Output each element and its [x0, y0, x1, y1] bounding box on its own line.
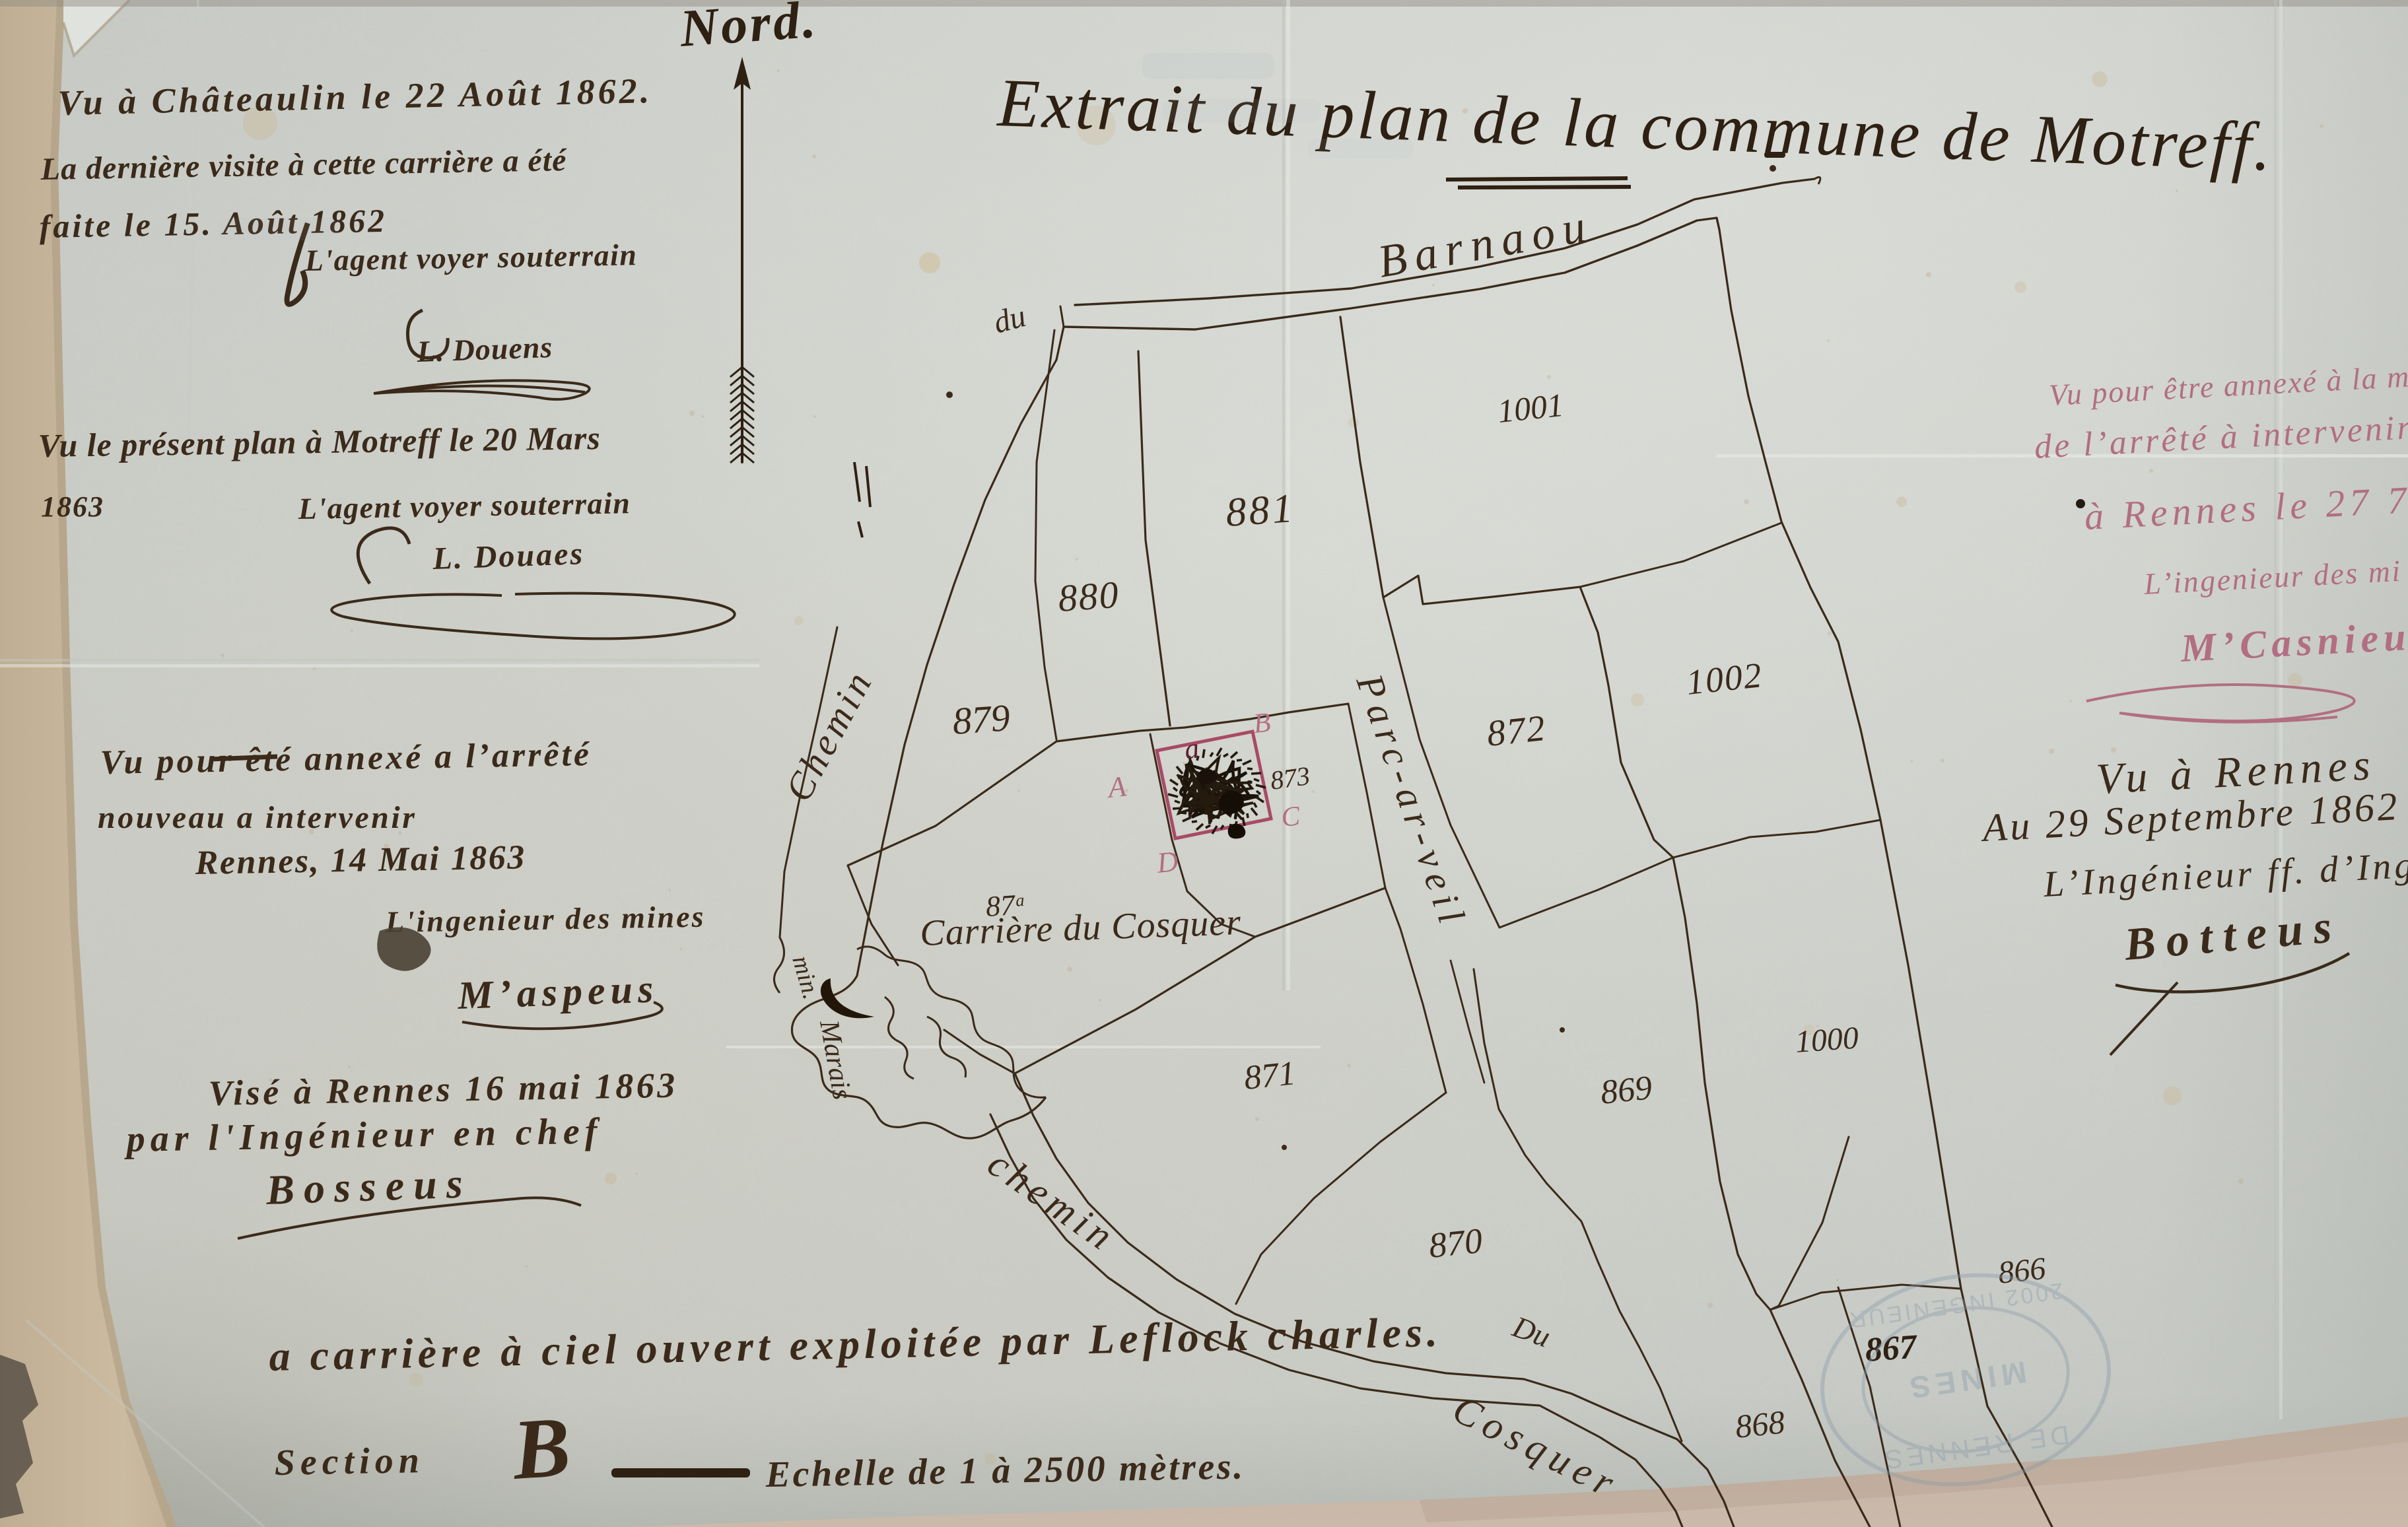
svg-text:D: D [1155, 845, 1180, 879]
svg-text:L. Douaes: L. Douaes [432, 536, 585, 576]
svg-text:C: C [1280, 801, 1302, 833]
svg-text:869: 869 [1599, 1069, 1654, 1112]
svg-text:881: 881 [1224, 486, 1296, 535]
svg-text:871: 871 [1242, 1054, 1297, 1097]
svg-text:1000: 1000 [1794, 1020, 1859, 1060]
svg-text:Visé à Rennes 16 mai 1863: Visé à Rennes 16 mai 1863 [208, 1066, 678, 1113]
svg-text:L'ingenieur des mines: L'ingenieur des mines [384, 900, 706, 939]
svg-text:Section: Section [274, 1440, 425, 1483]
svg-text:par l'Ingénieur en chef: par l'Ingénieur en chef [123, 1110, 603, 1160]
svg-text:Vu le présent plan à Motreff l: Vu le présent plan à Motreff le 20 Mars [38, 419, 601, 464]
svg-text:Nord.: Nord. [677, 0, 820, 58]
svg-text:872: 872 [1485, 708, 1548, 755]
svg-text:1001: 1001 [1496, 386, 1565, 430]
svg-text:879: 879 [951, 696, 1011, 743]
svg-text:L'agent voyer souterrain: L'agent voyer souterrain [304, 238, 637, 277]
svg-text:873: 873 [1268, 761, 1312, 796]
svg-text:Echelle de 1 à 2500 mètres.: Echelle de 1 à 2500 mètres. [765, 1446, 1245, 1495]
svg-text:B: B [1252, 708, 1272, 739]
svg-text:1002: 1002 [1684, 655, 1765, 702]
svg-text:868: 868 [1733, 1403, 1786, 1445]
svg-text:880: 880 [1056, 573, 1120, 620]
svg-text:L'agent voyer souterrain: L'agent voyer souterrain [297, 486, 631, 526]
svg-text:B: B [508, 1399, 574, 1498]
svg-text:M’aspeus: M’aspeus [456, 967, 659, 1017]
svg-text:Rennes, 14 Mai 1863: Rennes, 14 Mai 1863 [194, 838, 526, 882]
svg-text:1863: 1863 [41, 491, 104, 523]
svg-text:nouveau a intervenir: nouveau a intervenir [98, 800, 417, 835]
svg-text:870: 870 [1427, 1221, 1484, 1266]
svg-text:L. Douens: L. Douens [416, 330, 553, 368]
